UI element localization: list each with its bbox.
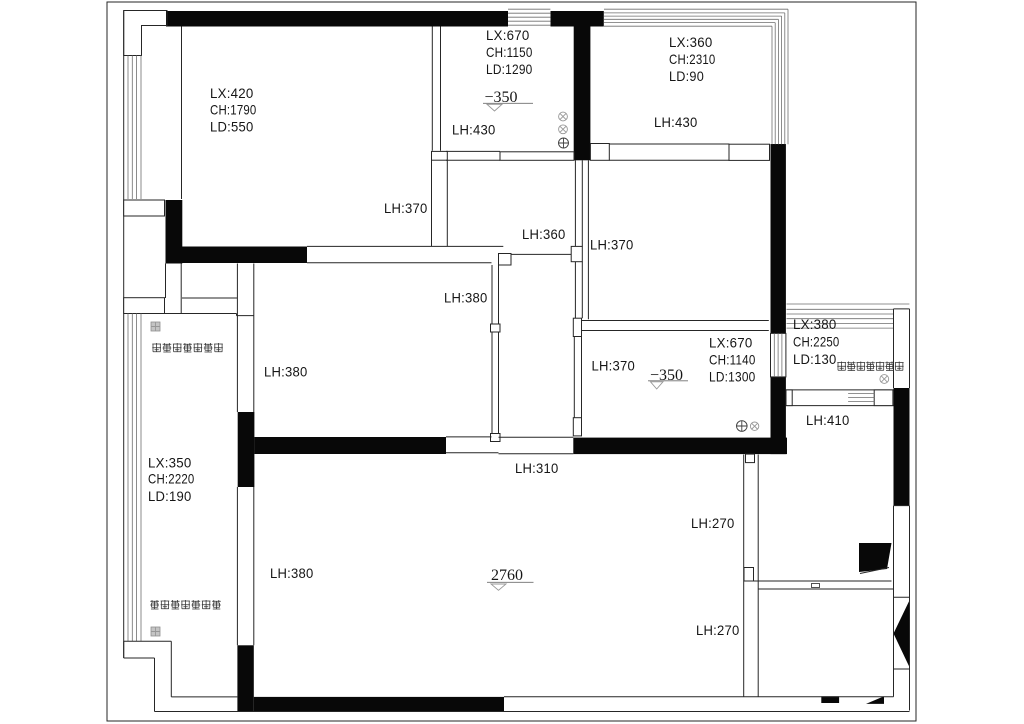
svg-text:LX:670: LX:670 [709,335,753,351]
svg-text:CH:2250: CH:2250 [793,334,840,350]
svg-text:LD:130: LD:130 [793,351,837,367]
svg-text:LH:370: LH:370 [384,200,428,216]
svg-text:LH:410: LH:410 [806,412,850,428]
svg-text:LX:360: LX:360 [669,34,713,50]
svg-text:LD:190: LD:190 [148,488,192,504]
svg-text:CH:2310: CH:2310 [669,51,716,67]
svg-text:CH:2220: CH:2220 [148,471,195,487]
svg-text:LH:310: LH:310 [515,460,559,476]
svg-text:LH:370: LH:370 [592,358,636,374]
svg-text:CH:1140: CH:1140 [709,352,756,368]
svg-text:LX:670: LX:670 [486,27,530,43]
svg-text:2760: 2760 [491,567,523,584]
svg-text:LH:430: LH:430 [654,114,698,130]
svg-text:LD:1300: LD:1300 [709,369,756,385]
svg-text:LH:380: LH:380 [444,290,488,306]
svg-text:LX:350: LX:350 [148,454,192,470]
svg-text:LH:380: LH:380 [264,364,308,380]
svg-text:LD:550: LD:550 [210,118,254,134]
svg-text:LH:270: LH:270 [696,622,740,638]
svg-text:LX:420: LX:420 [210,85,254,101]
svg-text:LH:380: LH:380 [270,565,314,581]
svg-text:LX:380: LX:380 [793,316,837,332]
svg-text:LH:370: LH:370 [590,237,634,253]
svg-text:CH:1150: CH:1150 [486,44,533,60]
svg-text:LH:360: LH:360 [522,226,566,242]
svg-text:LD:1290: LD:1290 [486,61,533,77]
svg-text:LH:270: LH:270 [691,515,735,531]
svg-text:CH:1790: CH:1790 [210,102,257,118]
svg-text:LH:430: LH:430 [452,122,496,138]
svg-text:LD:90: LD:90 [669,68,704,84]
